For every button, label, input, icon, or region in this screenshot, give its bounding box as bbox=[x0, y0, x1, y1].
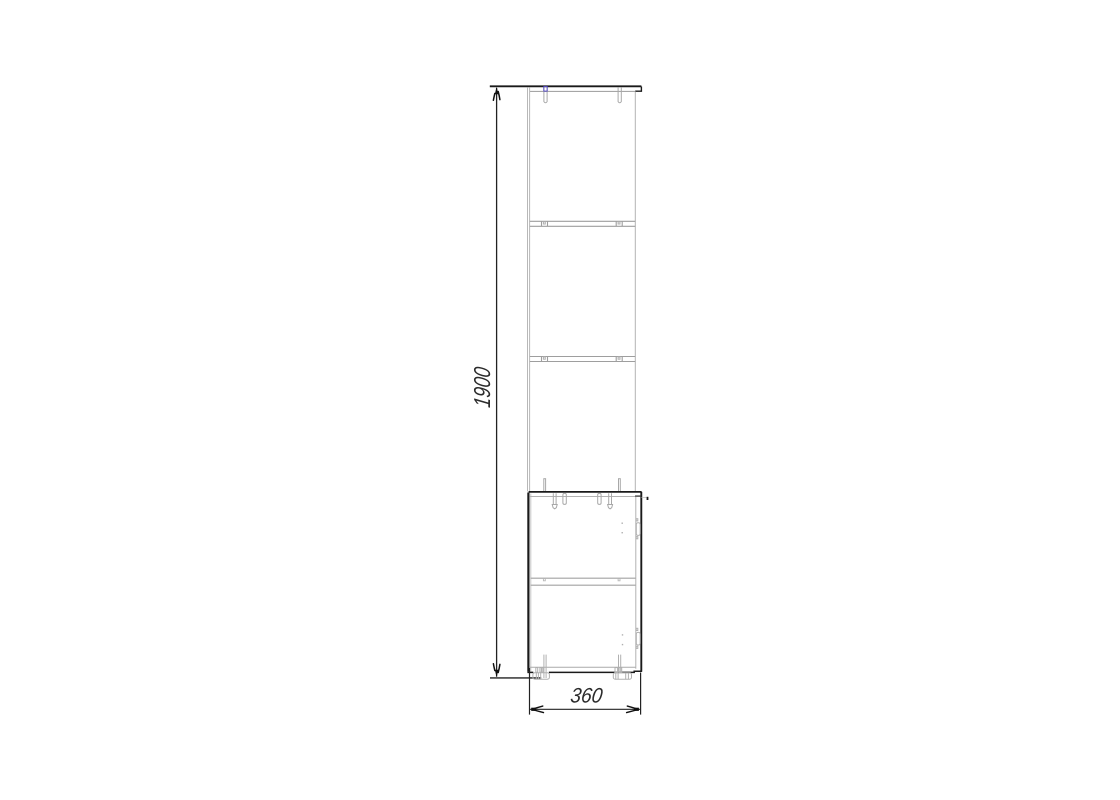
svg-text:360: 360 bbox=[569, 685, 604, 708]
svg-text:1900: 1900 bbox=[470, 365, 495, 409]
